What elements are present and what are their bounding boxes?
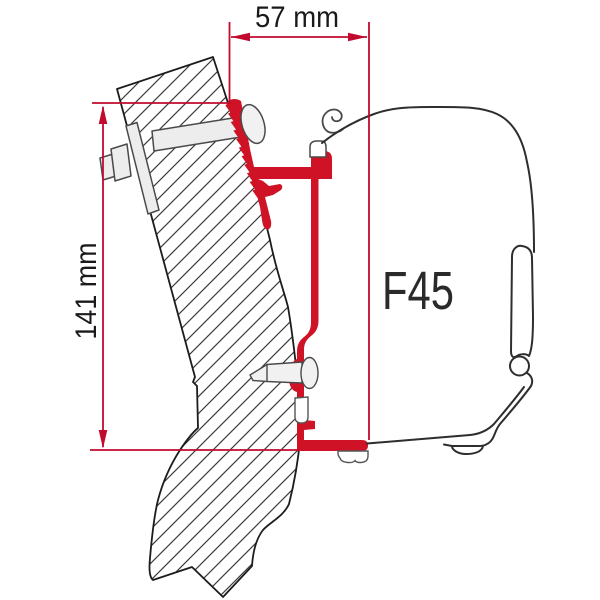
screw-head — [301, 358, 318, 389]
installation-diagram: 57 mm 141 mm F45 — [0, 0, 600, 600]
case-rail-lip — [310, 141, 326, 157]
dimension-width-label: 57 mm — [255, 1, 339, 34]
case-roller-bump — [452, 446, 483, 454]
dimension-height-label: 141 mm — [70, 243, 103, 340]
arrow-57-left-icon — [231, 33, 250, 41]
arrow-141-down-icon — [99, 430, 108, 449]
arrow-57-right-icon — [348, 33, 367, 41]
case-rail-hook-icon — [323, 110, 343, 133]
case-lower-kick — [527, 373, 532, 386]
rail-clip-tab — [295, 397, 308, 423]
foot-pad — [338, 451, 368, 463]
case-top-outline — [322, 107, 534, 252]
diagram-canvas: 57 mm 141 mm F45 — [0, 0, 600, 600]
product-label: F45 — [382, 261, 454, 321]
arrow-141-up-icon — [99, 106, 108, 125]
case-lid-flap — [511, 246, 533, 357]
bolt-hex-nut — [111, 144, 131, 181]
case-bottom-edge — [367, 387, 524, 444]
